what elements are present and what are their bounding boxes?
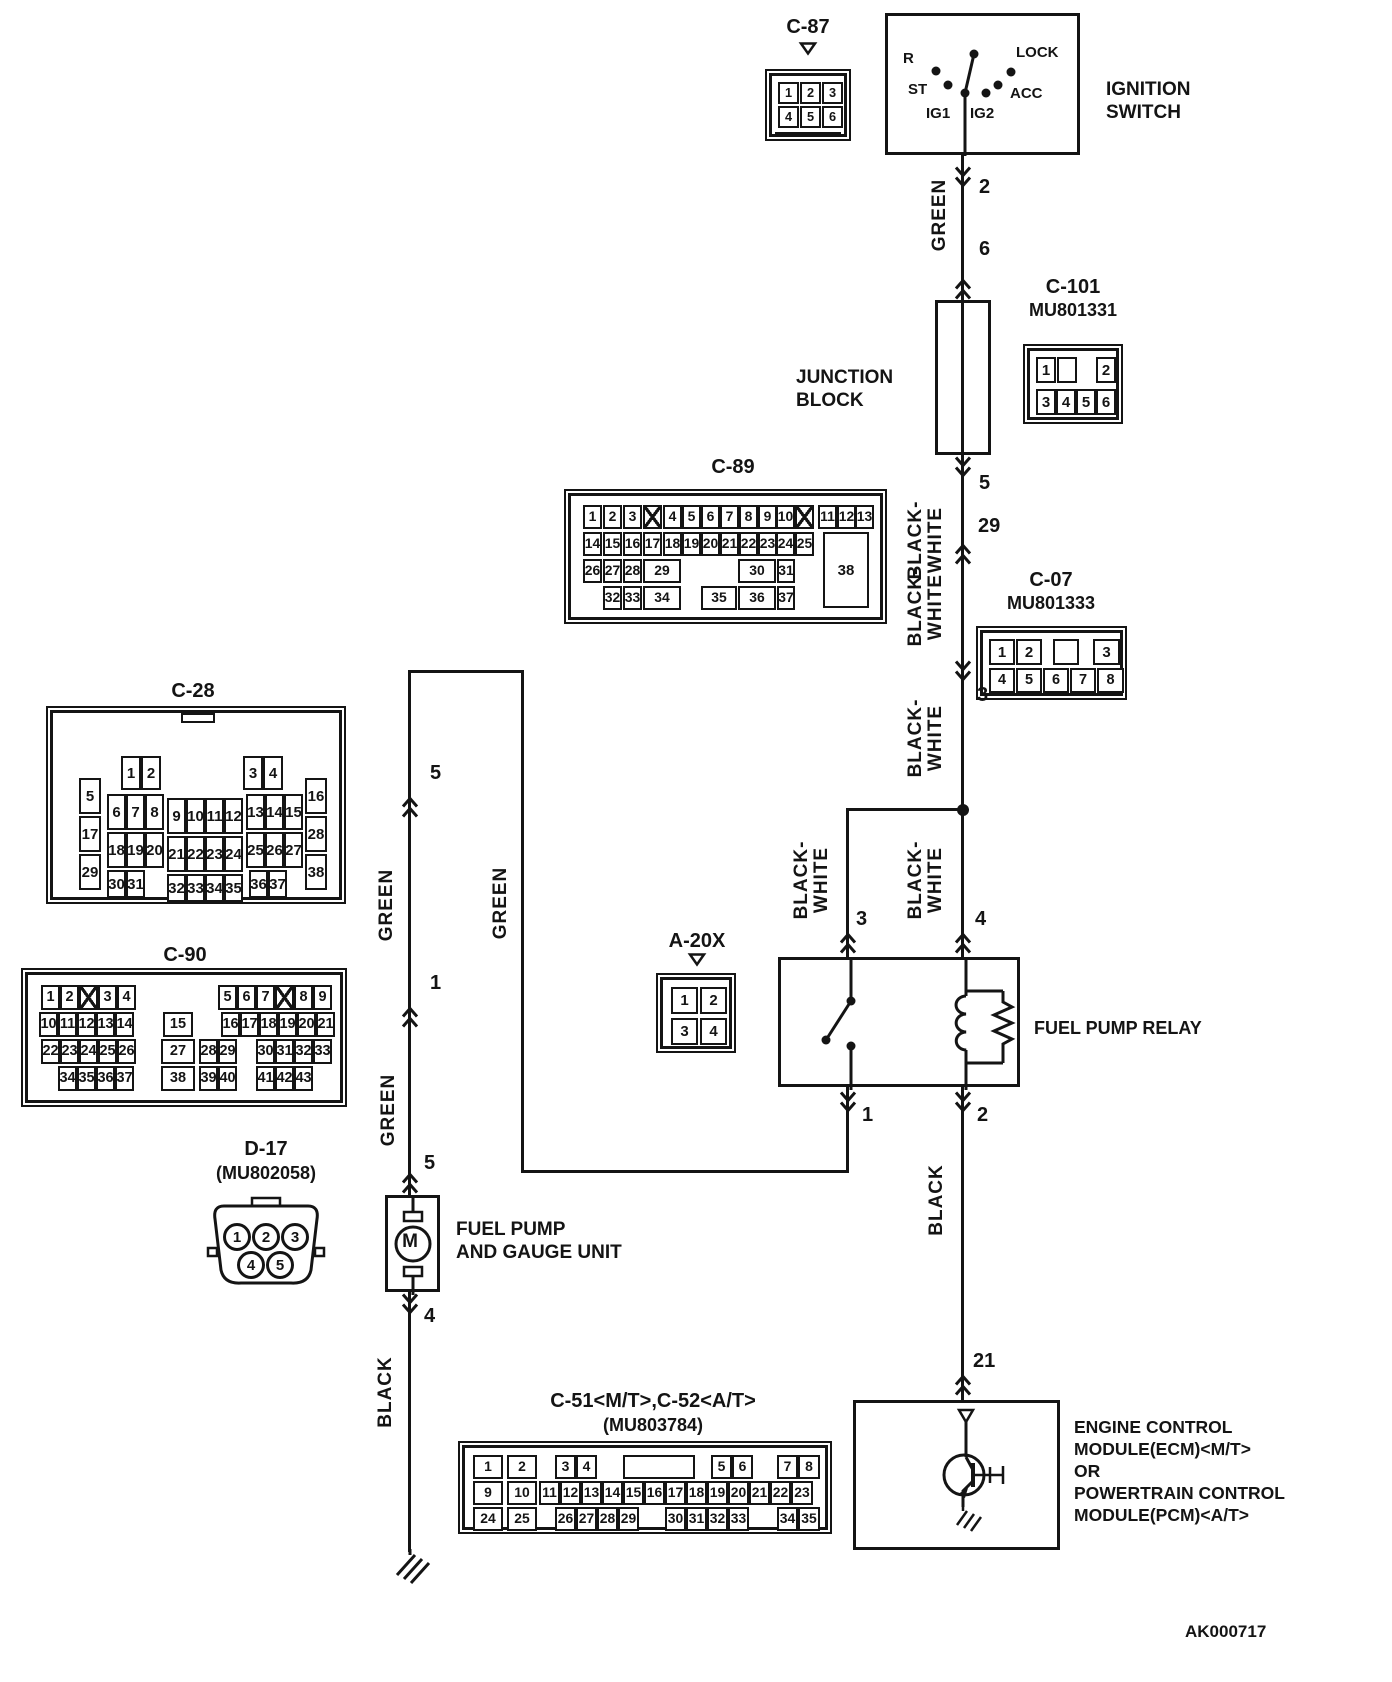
wire-color-line: BLACK-: [906, 699, 926, 778]
wire-color-line: BLACK: [376, 1356, 396, 1428]
wire-color-label: BLACK-WHITE: [792, 841, 832, 920]
pin-number-label: 6: [979, 238, 990, 261]
connector-part-label: (MU803784): [603, 1415, 703, 1436]
connector-id-label: C-28: [171, 680, 214, 703]
wire-color-label: BLACK-WHITE: [906, 568, 946, 647]
label-layer: AK000717 2652933412215154GREENBLACK-WHIT…: [0, 0, 1392, 1682]
connector-part-label: (MU802058): [216, 1163, 316, 1184]
wire-color-line: BLACK: [927, 1164, 947, 1236]
pin-number-label: 2: [979, 176, 990, 199]
pin-number-label: 29: [978, 515, 1000, 538]
wire-color-line: GREEN: [379, 1074, 399, 1147]
wire-color-line: BLACK-: [792, 841, 812, 920]
pin-number-label: 2: [977, 1104, 988, 1127]
pin-number-label: 4: [424, 1305, 435, 1328]
wire-color-label: BLACK-WHITE: [906, 699, 946, 778]
wire-color-label: BLACK: [376, 1356, 396, 1428]
connector-part-label: MU801331: [1029, 300, 1117, 321]
figure-code: AK000717: [1185, 1622, 1266, 1642]
ignition-position-label: ACC: [1010, 85, 1043, 102]
wiring-diagram: IGNITIONSWITCH JUNCTIONBLOCK FUEL PUMP R…: [0, 0, 1392, 1682]
pin-number-label: 4: [975, 908, 986, 931]
connector-id-label: C-87: [786, 16, 829, 39]
connector-id-label: C-07: [1029, 569, 1072, 592]
connector-marker-icon: [799, 42, 817, 60]
wire-color-line: BLACK-: [906, 568, 926, 647]
pin-number-label: 3: [856, 908, 867, 931]
wire-color-label: GREEN: [930, 179, 950, 252]
ignition-position-label: R: [903, 50, 914, 67]
pin-number-label: 1: [430, 972, 441, 995]
wire-color-line: WHITE: [812, 841, 832, 920]
wire-color-line: GREEN: [377, 869, 397, 942]
pin-number-label: 5: [979, 472, 990, 495]
pin-number-label: 3: [977, 684, 988, 707]
wire-color-line: GREEN: [491, 867, 511, 940]
ignition-position-label: IG2: [970, 105, 994, 122]
pin-number-label: 21: [973, 1350, 995, 1373]
wire-color-line: WHITE: [926, 568, 946, 647]
ignition-position-label: ST: [908, 81, 927, 98]
connector-id-label: C-89: [711, 456, 754, 479]
wire-color-label: GREEN: [379, 1074, 399, 1147]
connector-id-label: A-20X: [669, 930, 726, 953]
connector-part-label: MU801333: [1007, 593, 1095, 614]
pin-number-label: 1: [862, 1104, 873, 1127]
connector-id-label: C-90: [163, 944, 206, 967]
wire-color-label: GREEN: [377, 869, 397, 942]
wire-color-line: WHITE: [926, 841, 946, 920]
pin-number-label: 5: [430, 762, 441, 785]
connector-id-label: D-17: [244, 1138, 287, 1161]
pin-number-label: 5: [424, 1152, 435, 1175]
connector-marker-icon: [688, 953, 706, 971]
wire-color-line: BLACK-: [906, 841, 926, 920]
wire-color-label: BLACK: [927, 1164, 947, 1236]
connector-id-label: C-101: [1046, 276, 1100, 299]
wire-color-line: GREEN: [930, 179, 950, 252]
wire-color-label: BLACK-WHITE: [906, 841, 946, 920]
wire-color-label: GREEN: [491, 867, 511, 940]
ignition-position-label: LOCK: [1016, 44, 1059, 61]
wire-color-line: WHITE: [926, 699, 946, 778]
connector-id-label: C-51<M/T>,C-52<A/T>: [550, 1390, 756, 1413]
ignition-position-label: IG1: [926, 105, 950, 122]
